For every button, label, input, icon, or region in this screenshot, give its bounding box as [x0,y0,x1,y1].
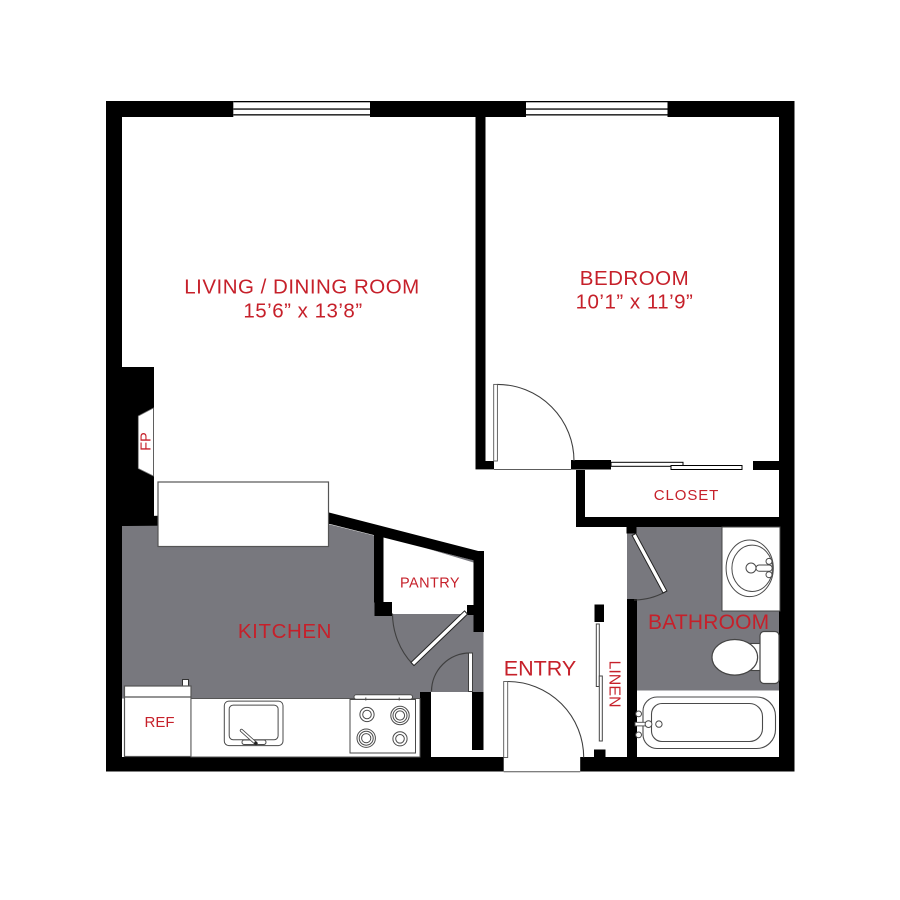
svg-text:CLOSET: CLOSET [654,487,719,504]
svg-text:15’6” x 13’8”: 15’6” x 13’8” [243,300,362,323]
svg-text:LINEN: LINEN [606,660,623,707]
svg-text:10’1” x 11’9”: 10’1” x 11’9” [576,291,694,314]
svg-text:KITCHEN: KITCHEN [238,620,332,643]
svg-text:FP: FP [139,432,155,451]
svg-text:BATHROOM: BATHROOM [648,611,769,634]
svg-text:ENTRY: ENTRY [504,657,576,681]
svg-text:BEDROOM: BEDROOM [580,267,689,290]
svg-text:PANTRY: PANTRY [400,576,460,592]
svg-text:REF: REF [145,714,175,731]
svg-text:LIVING / DINING ROOM: LIVING / DINING ROOM [184,276,420,299]
